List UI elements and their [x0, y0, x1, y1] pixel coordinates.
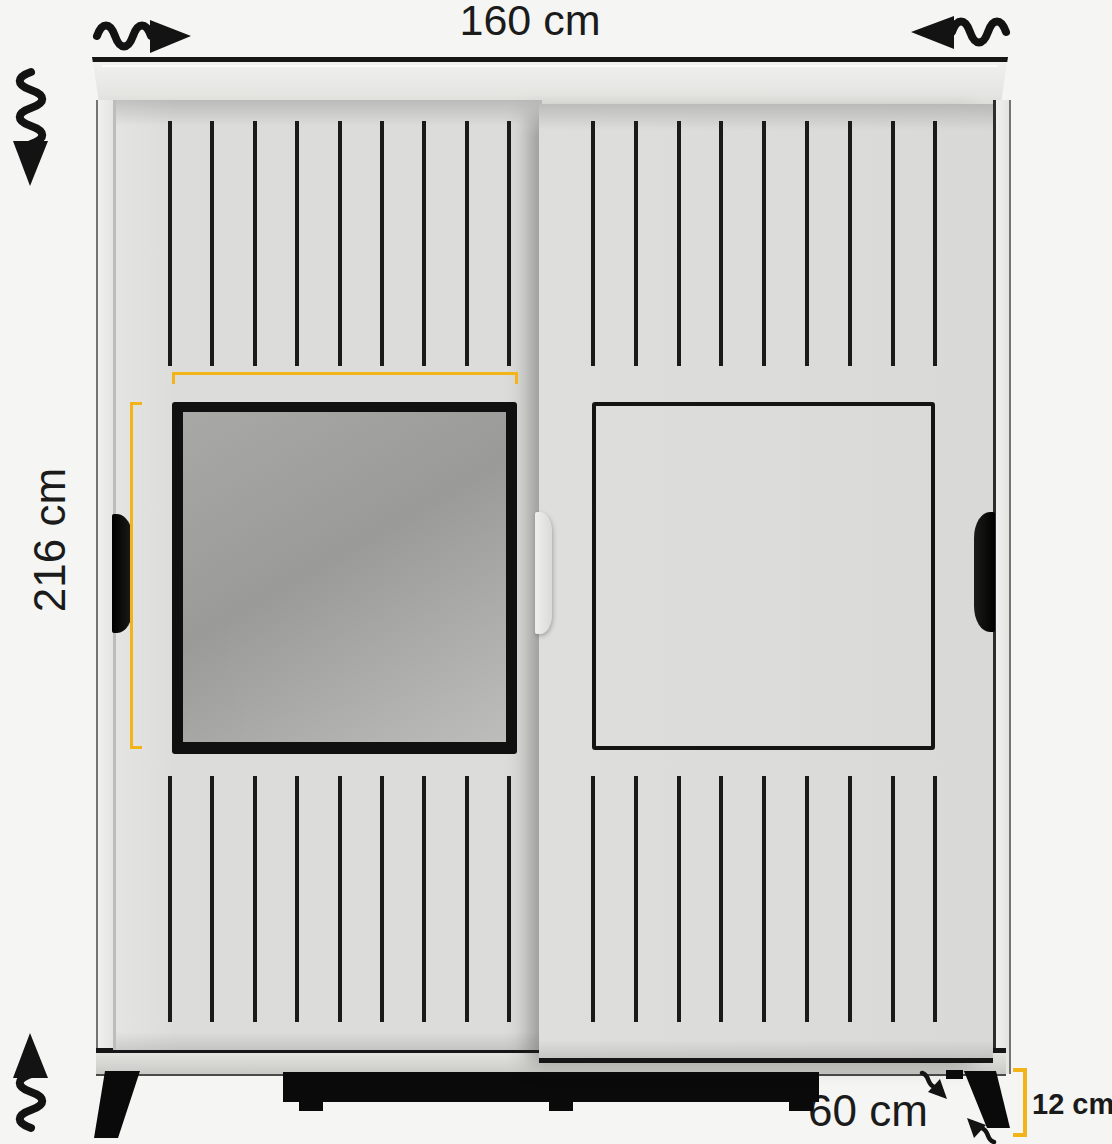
mirror-width-dimension-line — [172, 372, 518, 375]
right-door-handle — [974, 512, 995, 632]
center-door-edge-handle — [535, 512, 552, 634]
mirror-frame — [172, 402, 517, 754]
slide-left-arrowhead — [911, 16, 954, 49]
slide-left-wavy-arrow — [952, 22, 1006, 43]
slide-right-wavy-arrow — [97, 26, 151, 47]
leg-pointer-up-arrowhead — [967, 1118, 986, 1138]
height-up-wavy-arrow — [20, 1074, 43, 1128]
left-leg — [94, 1071, 140, 1138]
height-up-arrowhead — [13, 1033, 48, 1078]
wardrobe-plinth-shadow — [283, 1072, 819, 1102]
height-dimension-label: 216 cm — [27, 460, 73, 620]
mirror-glass — [183, 412, 506, 742]
width-dimension-label: 160 cm — [400, 0, 660, 45]
leg-height-bracket — [1013, 1068, 1027, 1137]
right-door-panel-outline — [592, 402, 935, 750]
plinth-foot — [789, 1102, 813, 1111]
slide-right-arrowhead — [150, 20, 191, 53]
mirror-height-dimension-line — [130, 402, 133, 749]
right-door-bottom-slats — [591, 776, 938, 1022]
right-door-top-slats — [591, 121, 938, 366]
plinth-foot — [299, 1102, 323, 1111]
wardrobe-right-side-panel — [993, 100, 1011, 1074]
left-door-bottom-slats — [168, 776, 512, 1022]
leg-height-dimension-label: 12 cm — [1032, 1088, 1112, 1121]
plinth-foot — [549, 1102, 573, 1111]
leg-pointer-up-arrow — [982, 1128, 994, 1142]
height-down-wavy-arrow — [20, 72, 43, 144]
height-down-arrowhead — [13, 141, 48, 186]
wardrobe-dimension-diagram: 160 cm 216 cm 60 cm 12 cm 59 cm 69 cm — [0, 0, 1112, 1144]
right-leg — [964, 1071, 1010, 1128]
left-door-top-slats — [168, 121, 512, 366]
